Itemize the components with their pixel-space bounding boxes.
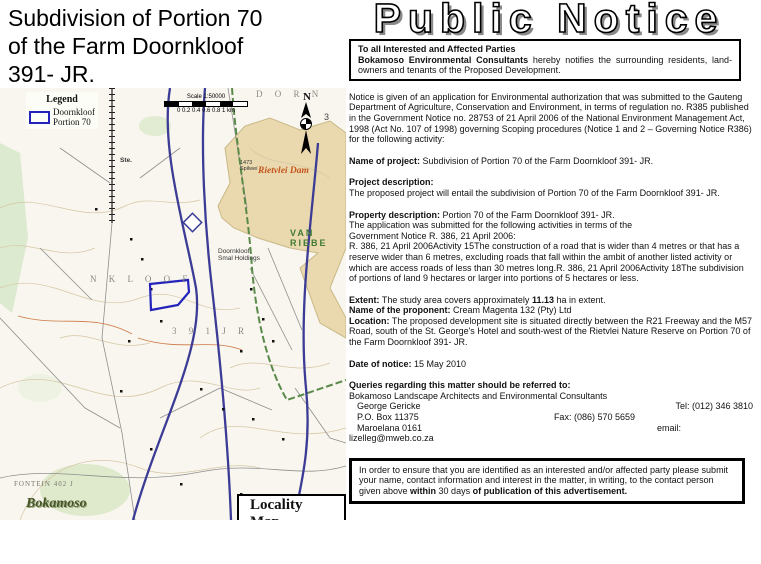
vegetation-patch [139,116,171,136]
extent-value: 11.13 [532,295,554,305]
property-description-label: Property description: [349,210,440,220]
scale-title: Scale 1:50000 [164,94,248,100]
map-label-391jr: 3 9 1 J R [172,326,249,336]
name-of-project: Name of project: Subdivision of Portion … [349,156,753,167]
contact-name: George Gericke [357,401,421,412]
map-label-nkloof: N K L O O F [90,274,192,284]
response-bold-2: of publication of this advertisement. [473,486,628,496]
extent-block: Extent: The study area covers approximat… [349,295,753,348]
proponent-label: Name of the proponent: [349,305,451,315]
notice-body: Notice is given of an application for En… [349,92,753,444]
consultant-name: Bokamoso Environmental Consultants [358,55,528,65]
public-notice-page: Subdivision of Portion 70 of the Farm Do… [0,0,761,564]
north-arrow: N [296,91,318,103]
bokamoso-logo: Bokamoso [26,496,87,512]
north-label: N [296,91,318,103]
name-of-project-label: Name of project: [349,156,420,166]
map-label-van-riebe: VAN RIEBE [290,228,346,248]
contact-fax: Fax: (086) 570 5659 [554,412,635,423]
date-label: Date of notice: [349,359,412,369]
date-of-notice: Date of notice: 15 May 2010 [349,359,753,370]
addressees-box: To all Interested and Affected Parties B… [349,39,741,81]
contact-row: Maroelana 0161 email: [349,423,753,434]
queries-label: Queries regarding this matter should be … [349,380,571,390]
scale-bar [164,101,248,107]
contact-city: Maroelana 0161 [357,423,422,434]
contact-row: P.O. Box 11375 Fax: (086) 570 5659 [349,412,753,423]
queries-org: Bokamoso Landscape Architects and Enviro… [349,391,753,402]
notice-column: Public Notice To all Interested and Affe… [347,0,761,564]
freeway-west [133,88,197,520]
vegetation-patch [18,374,62,402]
project-description-text: The proposed project will entail the sub… [349,188,753,199]
map-label-holdings: Doornkloof Smal Holdings [218,248,260,262]
project-description: Project description: The proposed projec… [349,177,753,198]
map-legend: Legend Doornkloof Portion 70 [26,92,98,129]
property-description-text: Portion 70 of the Farm Doornkloof 391- J… [440,210,615,220]
map-scalebar: Scale 1:50000 0 0.2 0.4 0.6 0.8 1 km [164,94,248,114]
intro-text: Notice is given of an application for En… [349,92,753,145]
contact-email-label: email: [657,423,681,434]
project-description-label: Project description: [349,177,434,187]
page-title: Subdivision of Portion 70 of the Farm Do… [0,0,347,88]
extent-label: Extent: [349,295,380,305]
response-bold-1: within [410,486,436,496]
intro-paragraph: Notice is given of an application for En… [349,92,753,145]
proponent-text: Cream Magenta 132 (Pty) Ltd [451,305,572,315]
name-of-project-text: Subdivision of Portion 70 of the Farm Do… [420,156,653,166]
locality-map: Legend Doornkloof Portion 70 Scale 1:500… [0,88,346,520]
scale-ticks: 0 0.2 0.4 0.6 0.8 1 km [164,108,248,114]
map-number-label: 3 [324,112,329,122]
property-description-body: The application was submitted for the fo… [349,220,753,284]
queries-block: Queries regarding this matter should be … [349,380,753,444]
locality-map-label: Locality Map [237,494,346,520]
contact-row: George Gericke Tel: (012) 346 3810 [349,401,753,412]
map-label-spilwei: 1473 Spilwei [240,160,257,172]
left-column: Subdivision of Portion 70 of the Farm Do… [0,0,347,564]
interchange-diamond [183,213,201,231]
location-label: Location: [349,316,390,326]
portion70-swatch [29,111,50,124]
map-label-fontein: FONTEIN 402 J [14,480,74,488]
contact-email: lizelleg@mweb.co.za [349,433,753,444]
property-description: Property description: Portion 70 of the … [349,210,753,284]
extent-text: The study area covers approximately [380,295,532,305]
legend-title: Legend [29,94,95,105]
vegetation-patch [0,143,28,313]
response-text-2: 30 days [436,486,473,496]
response-box: In order to ensure that you are identifi… [349,458,745,504]
extent-after: ha in extent. [554,295,606,305]
contact-pobox: P.O. Box 11375 [357,412,419,423]
location-text: The proposed development site is situate… [349,316,752,347]
map-base-art [0,88,346,520]
map-label-rietvlei-dam: Rietvlei Dam [258,166,309,176]
public-notice-heading: Public Notice [347,0,751,36]
map-label-ste: Ste. [120,157,132,164]
contact-tel: Tel: (012) 346 3810 [675,401,753,412]
addressees-line: To all Interested and Affected Parties [358,44,516,54]
legend-item-label: Doornkloof Portion 70 [53,107,95,127]
date-text: 15 May 2010 [412,359,467,369]
